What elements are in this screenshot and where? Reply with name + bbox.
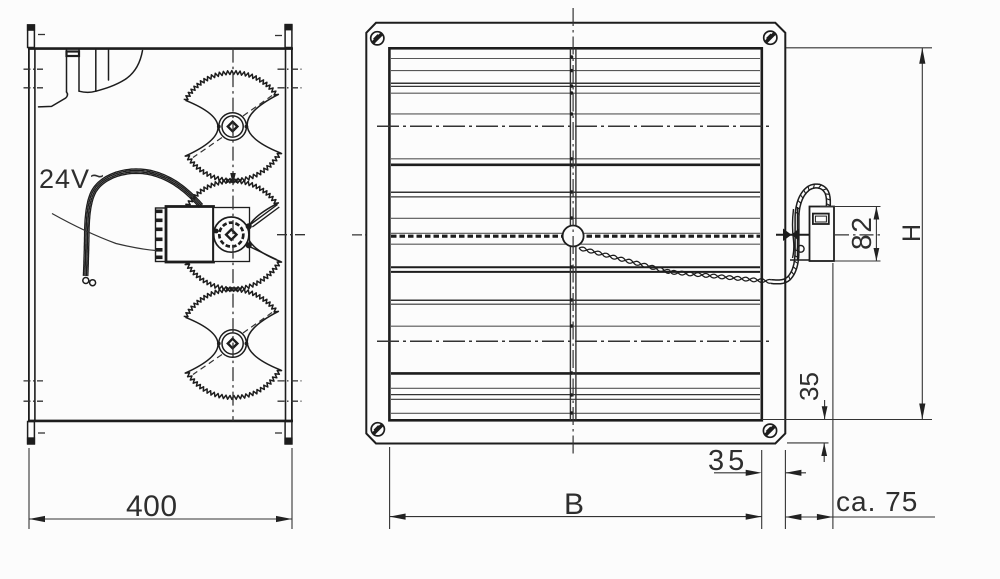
svg-text:B: B — [564, 488, 584, 521]
svg-text:400: 400 — [126, 490, 178, 523]
svg-text:24V: 24V — [39, 164, 90, 194]
svg-text:~: ~ — [90, 163, 104, 190]
svg-text:35: 35 — [794, 372, 824, 401]
svg-text:ca. 75: ca. 75 — [836, 486, 918, 517]
svg-text:H: H — [898, 224, 926, 242]
svg-text:35: 35 — [708, 445, 748, 477]
svg-text:82: 82 — [846, 217, 877, 250]
